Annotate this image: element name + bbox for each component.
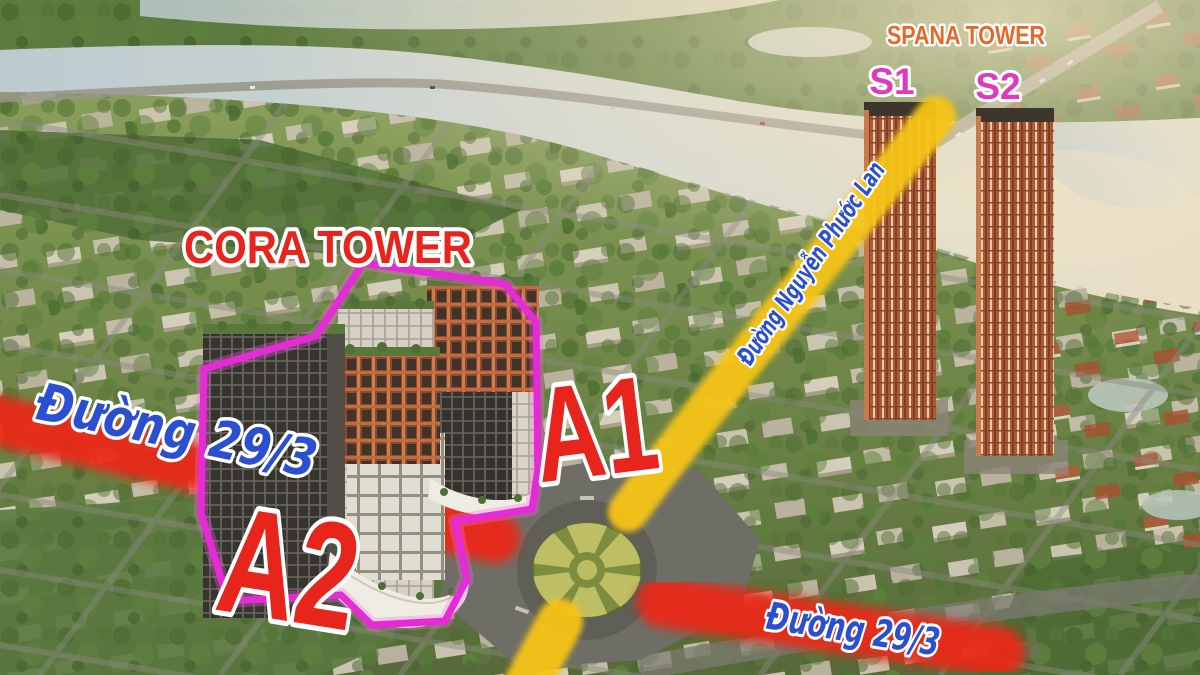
cora-tower-label: CORA TOWER	[184, 221, 472, 273]
cora-crown-mid	[332, 342, 440, 464]
spana-tower-s2-building	[964, 108, 1068, 474]
block-a1-label: A1	[525, 346, 665, 511]
block-s1-label: S1	[869, 61, 914, 102]
spana-tower-label: SPANA TOWER	[887, 20, 1045, 50]
block-a2-label: A2	[208, 474, 371, 663]
aerial-scene: CORA TOWER A1 A2 SPANA TOWER S1 S2 Đường…	[0, 0, 1200, 675]
aerial-masterplan-render: CORA TOWER A1 A2 SPANA TOWER S1 S2 Đường…	[0, 0, 1200, 675]
block-s2-label: S2	[975, 66, 1020, 107]
